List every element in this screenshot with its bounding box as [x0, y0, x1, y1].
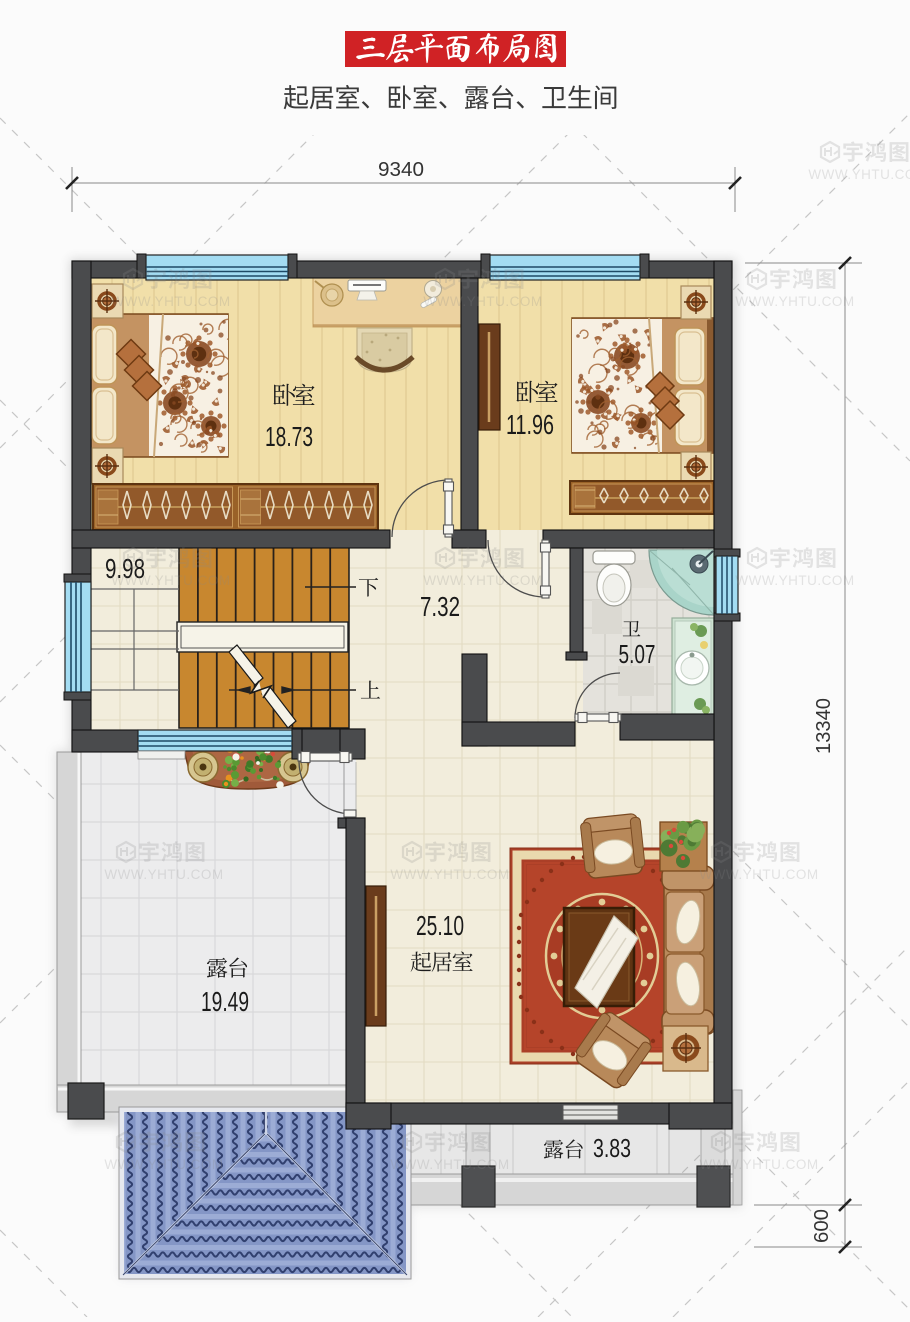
- svg-text:5.07: 5.07: [619, 639, 656, 669]
- svg-text:11.96: 11.96: [506, 409, 554, 440]
- svg-text:19.49: 19.49: [201, 986, 249, 1017]
- svg-text:18.73: 18.73: [265, 421, 313, 452]
- svg-text:WWW.YHTU.COM: WWW.YHTU.COM: [111, 294, 230, 309]
- svg-text:WWW.YHTU.COM: WWW.YHTU.COM: [423, 294, 542, 309]
- svg-text:7.32: 7.32: [420, 591, 460, 622]
- svg-text:WWW.YHTU.COM: WWW.YHTU.COM: [111, 573, 230, 588]
- svg-text:WWW.YHTU.COM: WWW.YHTU.COM: [808, 167, 910, 182]
- svg-text:WWW.YHTU.COM: WWW.YHTU.COM: [735, 573, 854, 588]
- svg-text:WWW.YHTU.COM: WWW.YHTU.COM: [104, 867, 223, 882]
- svg-text:25.10: 25.10: [416, 910, 464, 941]
- svg-text:WWW.YHTU.COM: WWW.YHTU.COM: [699, 1157, 818, 1172]
- svg-text:WWW.YHTU.COM: WWW.YHTU.COM: [104, 1157, 223, 1172]
- svg-text:9340: 9340: [378, 159, 424, 181]
- svg-text:WWW.YHTU.COM: WWW.YHTU.COM: [390, 1157, 509, 1172]
- svg-text:WWW.YHTU.COM: WWW.YHTU.COM: [390, 867, 509, 882]
- svg-text:WWW.YHTU.COM: WWW.YHTU.COM: [423, 573, 542, 588]
- svg-text:WWW.YHTU.COM: WWW.YHTU.COM: [735, 294, 854, 309]
- svg-text:13340: 13340: [813, 698, 835, 754]
- svg-text:3.83: 3.83: [593, 1133, 631, 1163]
- svg-text:WWW.YHTU.COM: WWW.YHTU.COM: [699, 867, 818, 882]
- svg-text:600: 600: [811, 1209, 833, 1243]
